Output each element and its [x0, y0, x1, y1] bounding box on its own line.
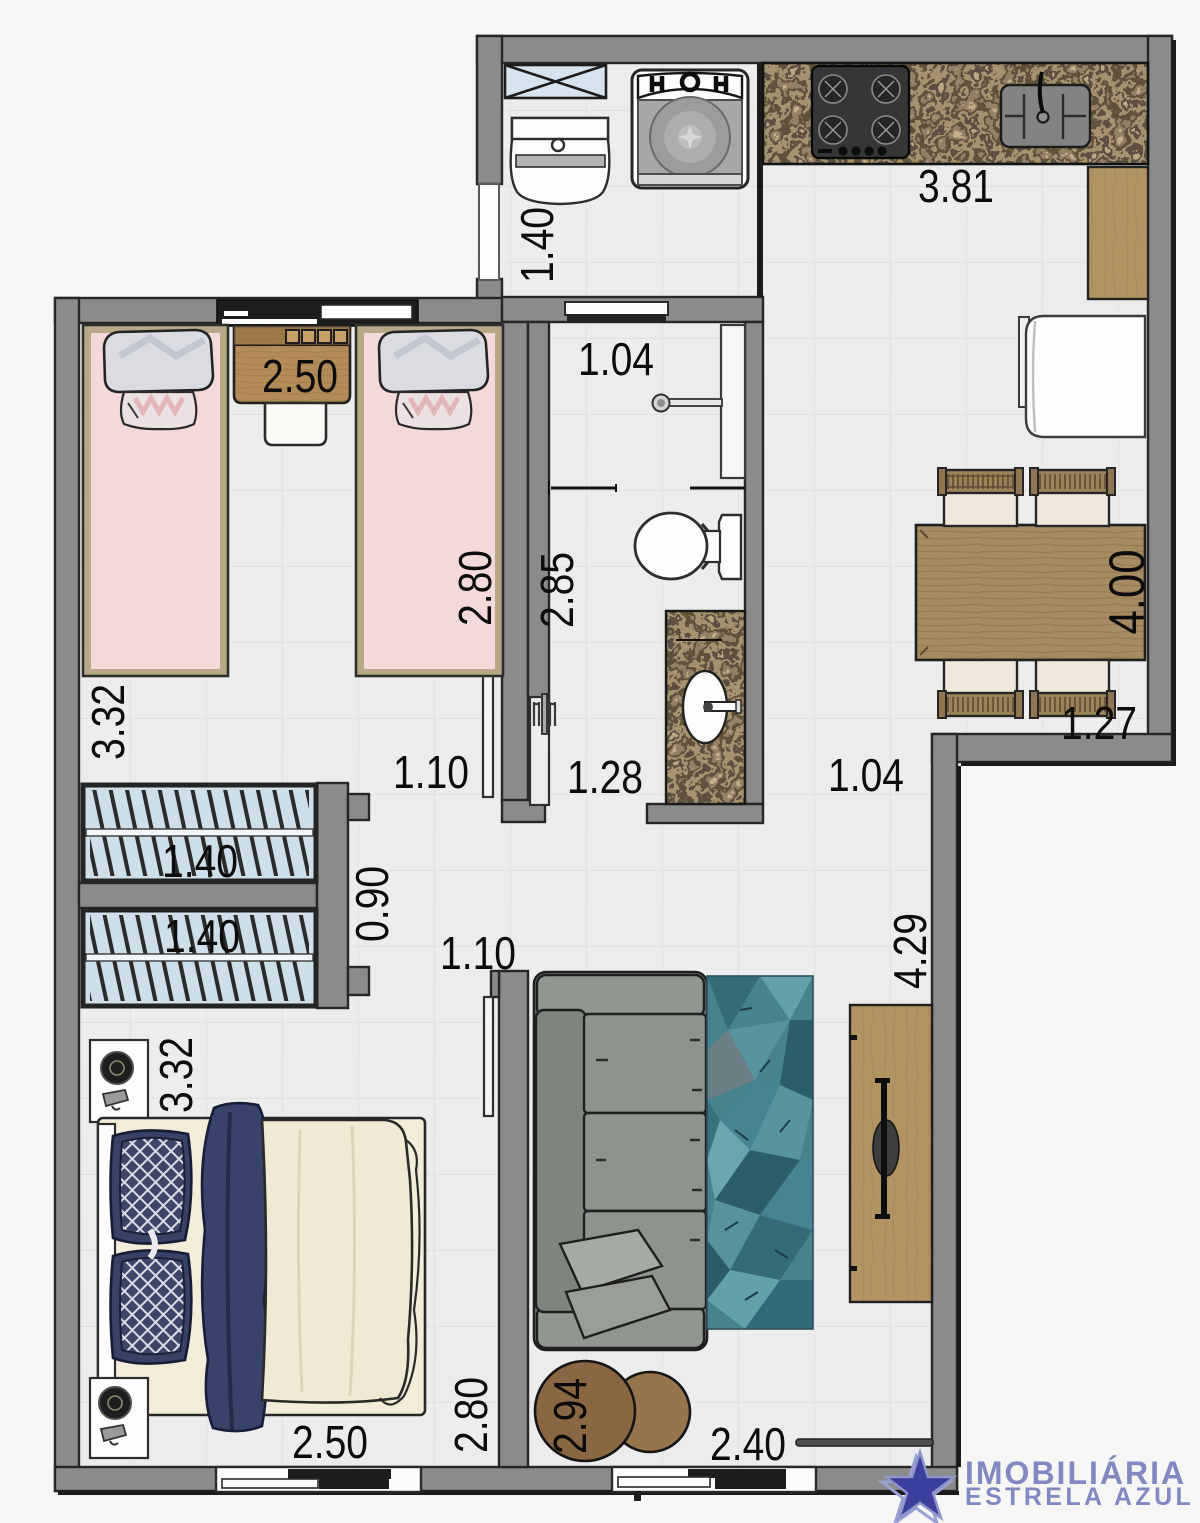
svg-text:1.28: 1.28 [567, 751, 643, 803]
svg-text:3.81: 3.81 [918, 160, 994, 212]
svg-text:2.94: 2.94 [544, 1378, 596, 1454]
svg-text:1.04: 1.04 [828, 749, 904, 801]
svg-text:2.80: 2.80 [449, 550, 501, 626]
svg-text:2.50: 2.50 [292, 1416, 368, 1468]
svg-text:1.27: 1.27 [1061, 697, 1137, 749]
svg-text:3.32: 3.32 [150, 1037, 202, 1113]
svg-text:2.50: 2.50 [262, 350, 338, 402]
svg-text:1.10: 1.10 [440, 927, 516, 979]
svg-text:2.80: 2.80 [445, 1377, 497, 1453]
svg-text:4.29: 4.29 [884, 913, 936, 989]
svg-text:1.10: 1.10 [393, 746, 469, 798]
svg-text:1.40: 1.40 [164, 910, 240, 962]
svg-text:3.32: 3.32 [82, 684, 134, 760]
svg-text:1.40: 1.40 [511, 207, 563, 283]
svg-text:ESTRELA AZUL: ESTRELA AZUL [965, 1483, 1194, 1511]
svg-text:1.40: 1.40 [162, 835, 238, 887]
svg-text:1.04: 1.04 [578, 333, 654, 385]
svg-text:2.40: 2.40 [710, 1418, 786, 1470]
svg-text:0.90: 0.90 [346, 866, 398, 942]
svg-text:4.00: 4.00 [1099, 550, 1155, 635]
svg-text:2.85: 2.85 [531, 552, 583, 628]
